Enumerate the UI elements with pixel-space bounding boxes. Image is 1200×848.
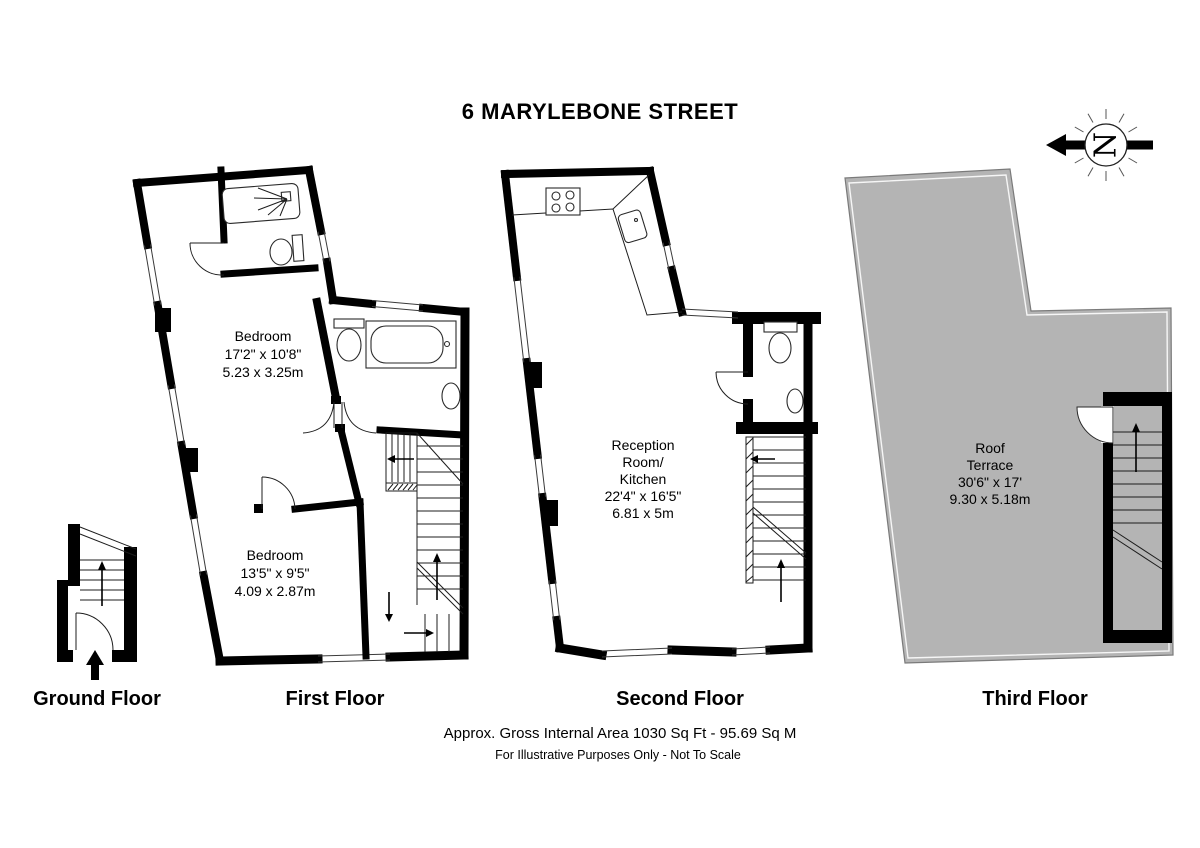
caption-second-floor: Second Floor [616, 688, 744, 711]
staircase [385, 433, 463, 652]
room-dims-imperial: 13'5" x 9'5" [235, 564, 316, 582]
entry-arrow [86, 650, 104, 680]
entry-door-arc [76, 613, 113, 650]
toilet-icon [334, 319, 364, 361]
bathtub-icon [366, 321, 456, 368]
room-name: Reception [605, 437, 682, 454]
compass-letter: N [1089, 132, 1124, 158]
caption-first-floor: First Floor [286, 688, 385, 711]
room-label-roof-terrace: Roof Terrace 30'6" x 17' 9.30 x 5.18m [950, 440, 1031, 508]
room-dims-metric: 6.81 x 5m [605, 505, 682, 522]
room-name: Terrace [950, 457, 1031, 474]
room-name: Kitchen [605, 471, 682, 488]
room-dims-metric: 9.30 x 5.18m [950, 491, 1031, 508]
floorplan-graphics: N [0, 0, 1200, 848]
room-name: Roof [950, 440, 1031, 457]
room-name: Bedroom [235, 546, 316, 564]
hob-icon [546, 188, 580, 215]
room-dims-metric: 4.09 x 2.87m [235, 582, 316, 600]
basin-icon [787, 389, 803, 413]
staircase [746, 437, 806, 602]
room-dims-imperial: 22'4" x 16'5" [605, 488, 682, 505]
page-title: 6 MARYLEBONE STREET [462, 99, 738, 125]
room-dims-imperial: 17'2" x 10'8" [223, 345, 304, 363]
caption-ground-floor: Ground Floor [33, 688, 161, 711]
gross-internal-area: Approx. Gross Internal Area 1030 Sq Ft -… [444, 725, 797, 742]
room-label-bedroom1: Bedroom 17'2" x 10'8" 5.23 x 3.25m [223, 327, 304, 381]
basin-icon [442, 383, 460, 409]
toilet-icon [764, 322, 797, 363]
room-label-bedroom2: Bedroom 13'5" x 9'5" 4.09 x 2.87m [235, 546, 316, 600]
floorplan-page: N 6 MARYLEBONE STREET Bedroom 17'2" x 10… [0, 0, 1200, 848]
room-name: Bedroom [223, 327, 304, 345]
caption-third-floor: Third Floor [982, 688, 1088, 711]
door-arc [262, 477, 295, 509]
compass: N [1046, 109, 1153, 181]
shower-icon [222, 183, 301, 224]
door-arc [190, 243, 224, 275]
room-name: Room/ [605, 454, 682, 471]
roof-terrace-area [845, 169, 1173, 663]
room-dims-metric: 5.23 x 3.25m [223, 363, 304, 381]
toilet-icon [270, 235, 304, 265]
room-dims-imperial: 30'6" x 17' [950, 474, 1031, 491]
third-floor-plan [845, 169, 1173, 663]
second-floor-plan [505, 171, 815, 657]
ground-floor-plan [57, 524, 137, 680]
room-label-reception: Reception Room/ Kitchen 22'4" x 16'5" 6.… [605, 437, 682, 522]
disclaimer: For Illustrative Purposes Only - Not To … [495, 748, 741, 762]
north-arrow-head [1046, 134, 1066, 156]
staircase [80, 560, 124, 606]
